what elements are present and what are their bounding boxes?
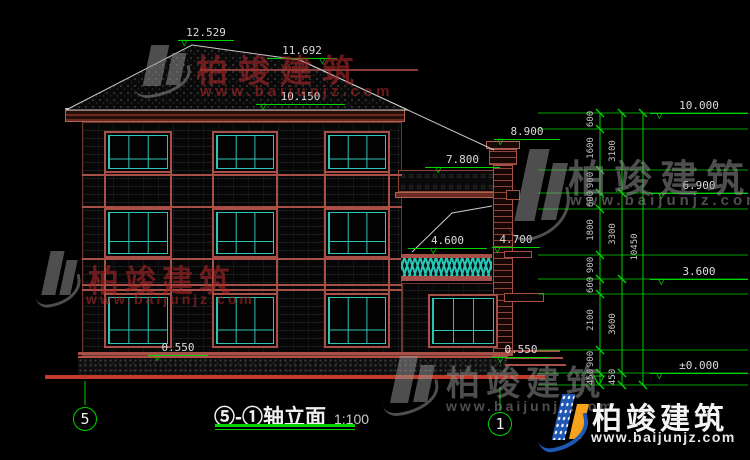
window-jamb-strip: [212, 258, 214, 293]
elevation-value: 10.150: [256, 90, 345, 103]
elevation-triangle-icon: ▽: [430, 246, 437, 256]
floor-band: [82, 289, 402, 291]
dim-value: 10450: [630, 227, 640, 267]
axis-bubble-1: 1: [488, 412, 512, 436]
window-jamb-strip: [276, 173, 278, 208]
window-1f-right: [324, 293, 390, 348]
elevation-triangle-icon: ▽: [154, 353, 161, 363]
main-eave-band: [65, 108, 405, 122]
window-1f-center: [212, 293, 278, 348]
elevation-marker-level-gf: ±0.000 ▽: [650, 359, 748, 373]
elevation-triangle-icon: ▽: [319, 56, 326, 66]
cad-elevation-drawing: 12.529 ▽ 11.692 ▽ 10.150 ▽ 8.900 ▽ 7.800…: [0, 0, 750, 460]
porch-floor-slab: [504, 293, 544, 302]
elevation-value: 10.000: [650, 99, 748, 112]
plinth-top-band: [78, 352, 512, 355]
elevation-marker-balcony-door: 4.700 ▽: [492, 233, 540, 247]
window-jamb-strip: [324, 258, 326, 293]
title-underline: [215, 424, 355, 427]
string-course: [82, 174, 402, 176]
axis-bubble-5: 5: [73, 407, 97, 431]
ground-line: [45, 375, 545, 379]
elevation-triangle-icon: ▽: [181, 38, 188, 48]
dim-value: 450: [608, 357, 618, 397]
window-1f-wing: [428, 294, 498, 348]
title-underline-thin: [215, 429, 355, 430]
dim-value: 3600: [608, 304, 618, 344]
window-jamb-strip: [104, 173, 106, 208]
elevation-value: 11.692: [267, 44, 337, 57]
elevation-triangle-icon: ▽: [656, 111, 663, 121]
watermark-logo-icon: [138, 42, 190, 94]
elevation-triangle-icon: ▽: [656, 371, 663, 381]
elevation-marker-level-3f: 6.900 ▽: [650, 179, 748, 193]
elevation-triangle-icon: ▽: [260, 102, 267, 112]
elevation-triangle-icon: ▽: [494, 245, 501, 255]
window-jamb-strip: [170, 173, 172, 208]
window-3f-left: [104, 131, 172, 173]
elevation-marker-ridge-rear: 11.692 ▽: [267, 44, 337, 58]
window-jamb-strip: [170, 258, 172, 293]
dim-value: 3300: [608, 214, 618, 254]
dim-value: 3100: [608, 131, 618, 171]
dimension-chains: [538, 109, 748, 389]
elevation-triangle-icon: ▽: [435, 165, 442, 175]
elevation-marker-ridge-main: 12.529 ▽: [178, 26, 234, 40]
elevation-triangle-icon: ▽: [658, 277, 665, 287]
window-3f-center: [212, 131, 278, 173]
elevation-triangle-icon: ▽: [497, 137, 504, 147]
dim-value: 600: [586, 265, 596, 305]
porch-parapet-tile-band: [398, 170, 498, 192]
window-jamb-strip: [212, 173, 214, 208]
elevation-line: [408, 248, 487, 249]
balcony-slab-edge: [504, 251, 532, 258]
elevation-marker-plinth-right: 0.550 ▽: [492, 343, 550, 357]
window-2f-right: [324, 208, 390, 258]
elevation-marker-porch-roof: 7.800 ▽: [425, 153, 500, 167]
elevation-marker-eave: 10.150 ▽: [256, 90, 345, 104]
elevation-value: 4.600: [408, 234, 487, 247]
dim-value: 2100: [586, 300, 596, 340]
axis-number: 5: [80, 410, 89, 428]
elevation-triangle-icon: ▽: [497, 355, 504, 365]
window-jamb-strip: [324, 173, 326, 208]
axis-number: 1: [495, 415, 504, 433]
window-2f-left: [104, 208, 172, 258]
elevation-marker-chimney: 8.900 ▽: [494, 125, 560, 139]
step-tread-line: [505, 364, 566, 366]
elevation-marker-level-2f: 3.600 ▽: [650, 265, 748, 279]
porch-fascia: [395, 192, 500, 198]
elevation-triangle-icon: ▽: [658, 191, 665, 201]
company-logo-site: www.baijunjz.com: [591, 429, 736, 445]
elevation-value: ±0.000: [650, 359, 748, 372]
window-jamb-strip: [388, 173, 390, 208]
elevation-marker-level-top: 10.000 ▽: [650, 99, 748, 113]
plinth-band: [78, 356, 508, 375]
watermark-site: www.baijunjz.com: [446, 398, 615, 414]
dim-value: 1800: [586, 210, 596, 250]
wall-bracket: [506, 190, 520, 200]
elevation-marker-plinth-left: 0.550 ▽: [148, 341, 208, 355]
string-course: [82, 258, 402, 260]
window-jamb-strip: [104, 258, 106, 293]
window-jamb-strip: [388, 258, 390, 293]
company-logo-icon: [541, 390, 589, 450]
elevation-line: [267, 58, 337, 59]
window-1f-left: [104, 293, 172, 348]
floor-band: [82, 284, 402, 286]
elevation-marker-balcony: 4.600 ▽: [408, 234, 487, 248]
watermark-logo-icon: [38, 248, 80, 304]
watermark-logo-icon: [512, 143, 570, 235]
elevation-line: [256, 104, 345, 105]
elevation-line: [650, 373, 748, 374]
elevation-line: [650, 113, 748, 114]
window-2f-center: [212, 208, 278, 258]
window-3f-right: [324, 131, 390, 173]
window-jamb-strip: [276, 258, 278, 293]
balcony-railing: [401, 254, 492, 281]
